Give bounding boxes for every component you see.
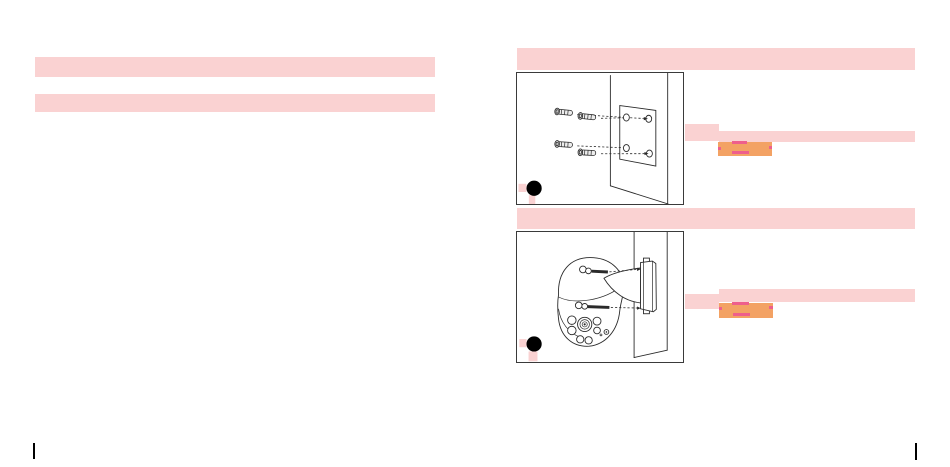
accent-mark <box>733 313 751 316</box>
manual-page <box>0 0 950 467</box>
accent-mark <box>719 307 723 310</box>
accent-mark <box>732 151 749 154</box>
wall-bracket-drawing <box>641 258 657 314</box>
ir-led-icon <box>594 327 601 334</box>
accent-mark <box>732 302 749 305</box>
caption1-line-redaction <box>719 131 915 142</box>
caption2-lead-redaction <box>685 294 719 309</box>
wall-anchor-icon <box>555 107 573 116</box>
redaction-mark <box>518 183 526 191</box>
ir-led-icon <box>585 337 592 344</box>
redacted-step1-title-bar <box>517 48 916 70</box>
redaction-mark <box>529 195 535 204</box>
accent-mark <box>769 146 772 149</box>
figure-camera-mounting <box>516 231 684 363</box>
step-marker-dot <box>526 180 541 195</box>
wall-anchor-icon <box>578 148 596 156</box>
caption1-lead-redaction <box>685 124 720 142</box>
redacted-step2-title-bar <box>517 208 916 229</box>
ir-led-icon <box>577 336 584 343</box>
wall-anchor-icon <box>555 140 573 148</box>
redaction-mark <box>519 339 526 347</box>
caption1-highlight-redaction <box>718 142 773 157</box>
accent-mark <box>718 147 722 150</box>
crop-mark-left <box>33 443 35 459</box>
step-marker-dot <box>526 336 541 351</box>
redaction-mark <box>529 351 538 361</box>
ir-led-icon <box>568 326 576 334</box>
caption2-line-redaction <box>719 289 916 302</box>
redacted-heading-bar <box>35 57 435 78</box>
redacted-subheading-bar <box>35 94 435 113</box>
accent-mark <box>769 306 773 309</box>
crop-mark-right <box>915 443 917 460</box>
wall-anchor-icon <box>578 112 596 121</box>
ir-led-icon <box>593 317 601 325</box>
caption2-highlight-redaction <box>719 303 773 319</box>
ir-led-icon <box>568 316 576 324</box>
accent-mark <box>732 141 748 144</box>
mounting-plate-drawing <box>620 105 656 166</box>
figure-anchor-installation <box>516 72 684 205</box>
